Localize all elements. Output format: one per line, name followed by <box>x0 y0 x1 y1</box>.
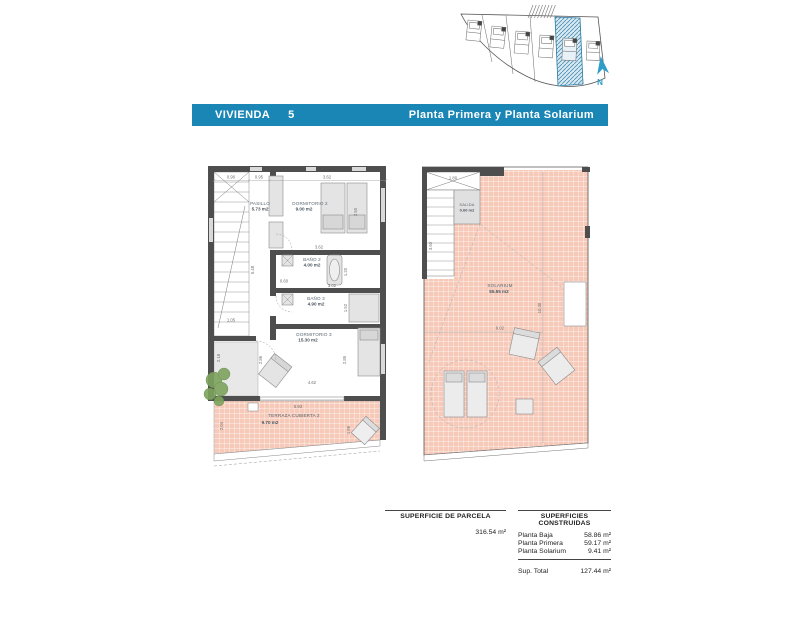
dimension-label: 1.05 <box>227 318 236 323</box>
dimension-label: 2.50 <box>353 207 358 216</box>
room-area-bano3: 4.90 m2 <box>308 302 325 307</box>
plan-subtitle: Planta Primera y Planta Solarium <box>409 109 594 121</box>
dimension-label: 2.85 <box>342 355 347 364</box>
construidas-rows: Planta Baja 58.86 m² Planta Primera 59.1… <box>518 532 611 560</box>
shower <box>349 294 379 322</box>
dimension-label: 1.86 <box>346 425 351 434</box>
room-area-salida: 0.60 m2 <box>460 207 475 212</box>
sliding-door <box>260 397 344 400</box>
dimension-label: 0.90 <box>227 175 236 180</box>
room-label-bano2: BAÑO 2 <box>303 256 321 262</box>
row-value: 9.41 m² <box>588 548 611 556</box>
room-area-terraza: 9.70 m2 <box>262 420 279 425</box>
dimension-label: 0.60 <box>280 279 289 284</box>
room-label-dormitorio3: DORMITORIO 3 <box>296 332 332 337</box>
room-area-dormitorio3: 15.30 m2 <box>298 338 318 343</box>
dimension-label: 2.86 <box>258 355 263 364</box>
row-label: Planta Primera <box>518 540 563 548</box>
room-area-dormitorio2: 9.00 m2 <box>296 207 313 212</box>
road-hatch-marks <box>528 5 555 18</box>
dimension-label: 1.52 <box>343 303 348 312</box>
table-row: Planta Primera 59.17 m² <box>518 540 611 548</box>
staircase <box>214 172 249 336</box>
room-area-solarium: 55.55 m2 <box>489 289 509 294</box>
parcela-title: SUPERFICIE DE PARCELA <box>385 510 506 520</box>
north-label: N <box>597 78 603 87</box>
parcela-summary: SUPERFICIE DE PARCELA 316.54 m² <box>385 510 506 536</box>
brochure-page: N VIVIENDA 5 Planta Primera y Planta Sol… <box>0 0 800 640</box>
terrace-box <box>248 403 258 411</box>
dimension-label: 1.80 <box>449 176 458 181</box>
row-label: Planta Baja <box>518 532 553 540</box>
construidas-summary: SUPERFICIES CONSTRUIDAS Planta Baja 58.8… <box>518 510 611 575</box>
floor-plan-planta-solarium: 1.80 3.60 10.30 6.02 SALIDA 0.60 m2 SOLA… <box>418 156 598 496</box>
dwelling-number: 5 <box>288 109 295 121</box>
dimension-label: 3.02 <box>328 283 337 288</box>
dimension-label: 10.30 <box>537 302 542 313</box>
room-area-pasillo: 5.73 m2 <box>252 207 269 212</box>
total-value: 127.44 m² <box>580 568 611 575</box>
dimension-label: 3.62 <box>315 245 324 250</box>
dwelling-title: VIVIENDA <box>215 109 270 121</box>
room-label-salida: SALIDA <box>459 202 474 207</box>
room-label-terraza: TERRAZA CUBIERTA 2 <box>268 413 320 418</box>
row-label: Planta Solarium <box>518 548 566 556</box>
side-table <box>516 399 533 414</box>
dimension-label: 5.48 <box>250 265 255 274</box>
furniture <box>269 176 380 376</box>
dimension-label: 6.02 <box>496 326 505 331</box>
site-boundary <box>461 14 605 86</box>
dimension-label: 2.04 <box>219 421 224 430</box>
dimension-label: 5.93 <box>294 404 303 409</box>
dimension-label: 1.20 <box>343 267 348 276</box>
header-bar: VIVIENDA 5 Planta Primera y Planta Solar… <box>192 104 608 126</box>
room-label-dormitorio2: DORMITORIO 2 <box>292 201 328 206</box>
row-value: 59.17 m² <box>584 540 611 548</box>
dimension-label: 0.95 <box>255 175 264 180</box>
dimension-label: 2.18 <box>216 353 221 362</box>
room-label-solarium: SOLARIUM <box>487 283 512 288</box>
construidas-title: SUPERFICIES CONSTRUIDAS <box>518 510 611 527</box>
dimension-label: 3.62 <box>323 175 332 180</box>
total-row: Sup. Total 127.44 m² <box>518 568 611 575</box>
dimension-label: 3.60 <box>428 241 433 250</box>
room-area-bano2: 4.00 m2 <box>304 263 321 268</box>
room-label-bano3: BAÑO 3 <box>307 295 325 301</box>
total-label: Sup. Total <box>518 568 548 575</box>
bench <box>564 282 586 326</box>
parcela-value: 316.54 m² <box>385 529 506 536</box>
wardrobe <box>269 176 283 216</box>
room-label-pasillo: PASILLO <box>250 201 270 206</box>
armchair <box>509 328 540 360</box>
armchair <box>259 353 292 387</box>
dimension-label: 4.62 <box>308 380 317 385</box>
table-row: Planta Solarium 9.41 m² <box>518 548 611 556</box>
site-plan: N <box>450 4 622 100</box>
floor-plan-planta-primera: 0.90 0.95 3.62 5.48 2.50 3.62 1.20 0.60 … <box>194 158 394 508</box>
table-row: Planta Baja 58.86 m² <box>518 532 611 540</box>
row-value: 58.86 m² <box>584 532 611 540</box>
